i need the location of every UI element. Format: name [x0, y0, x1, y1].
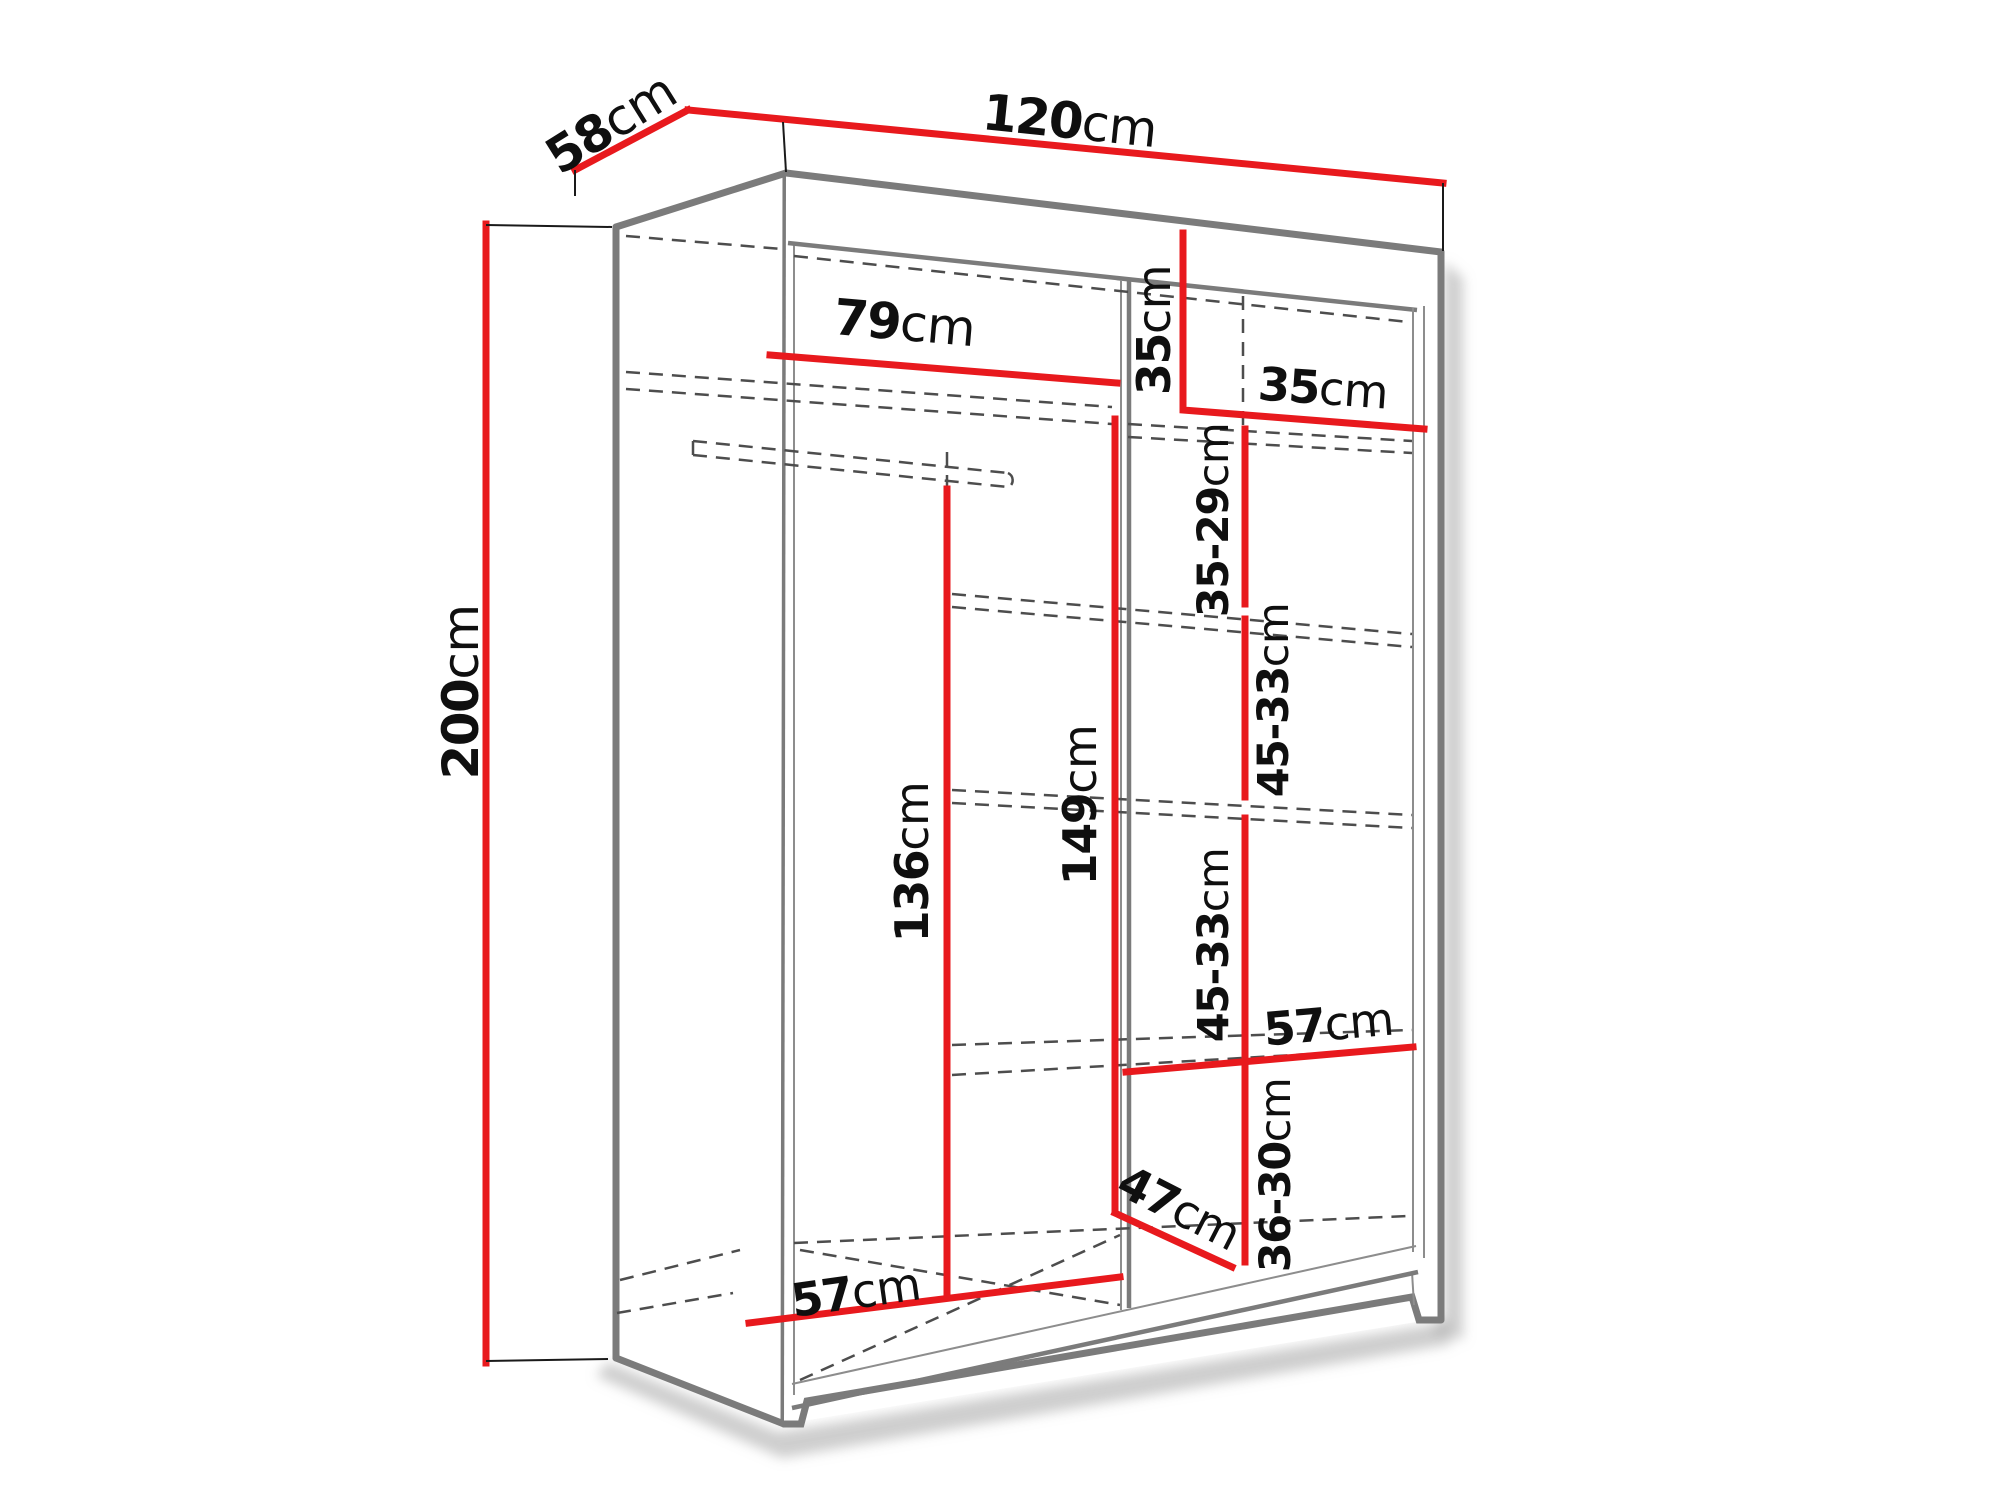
- shelf-width-label: 57cm: [1261, 991, 1395, 1056]
- top-cubby-height-label: 35cm: [1127, 265, 1181, 395]
- column-height-label: 149cm: [1053, 725, 1107, 886]
- shelf-gap-1-label: 35-29cm: [1189, 423, 1239, 618]
- shelf-gap-2-label: 45-33cm: [1249, 603, 1299, 798]
- shelf-gap-3-label: 45-33cm: [1189, 848, 1239, 1043]
- top-cubby-width-label: 35cm: [1256, 357, 1390, 420]
- left-side-panel: [616, 173, 786, 1424]
- depth-label: 58cm: [535, 61, 686, 185]
- bottom-gap-label: 36-30cm: [1251, 1078, 1301, 1273]
- wardrobe-diagram-page: 58cm 120cm 200cm 79cm 35cm 35cm 35-29cm …: [0, 0, 2000, 1500]
- left-width-label: 79cm: [831, 288, 977, 358]
- hanging-height-label: 136cm: [885, 782, 939, 943]
- wardrobe-diagram: 58cm 120cm 200cm 79cm 35cm 35cm 35-29cm …: [0, 0, 2000, 1500]
- width-label: 120cm: [980, 83, 1160, 159]
- height-label: 200cm: [432, 604, 490, 779]
